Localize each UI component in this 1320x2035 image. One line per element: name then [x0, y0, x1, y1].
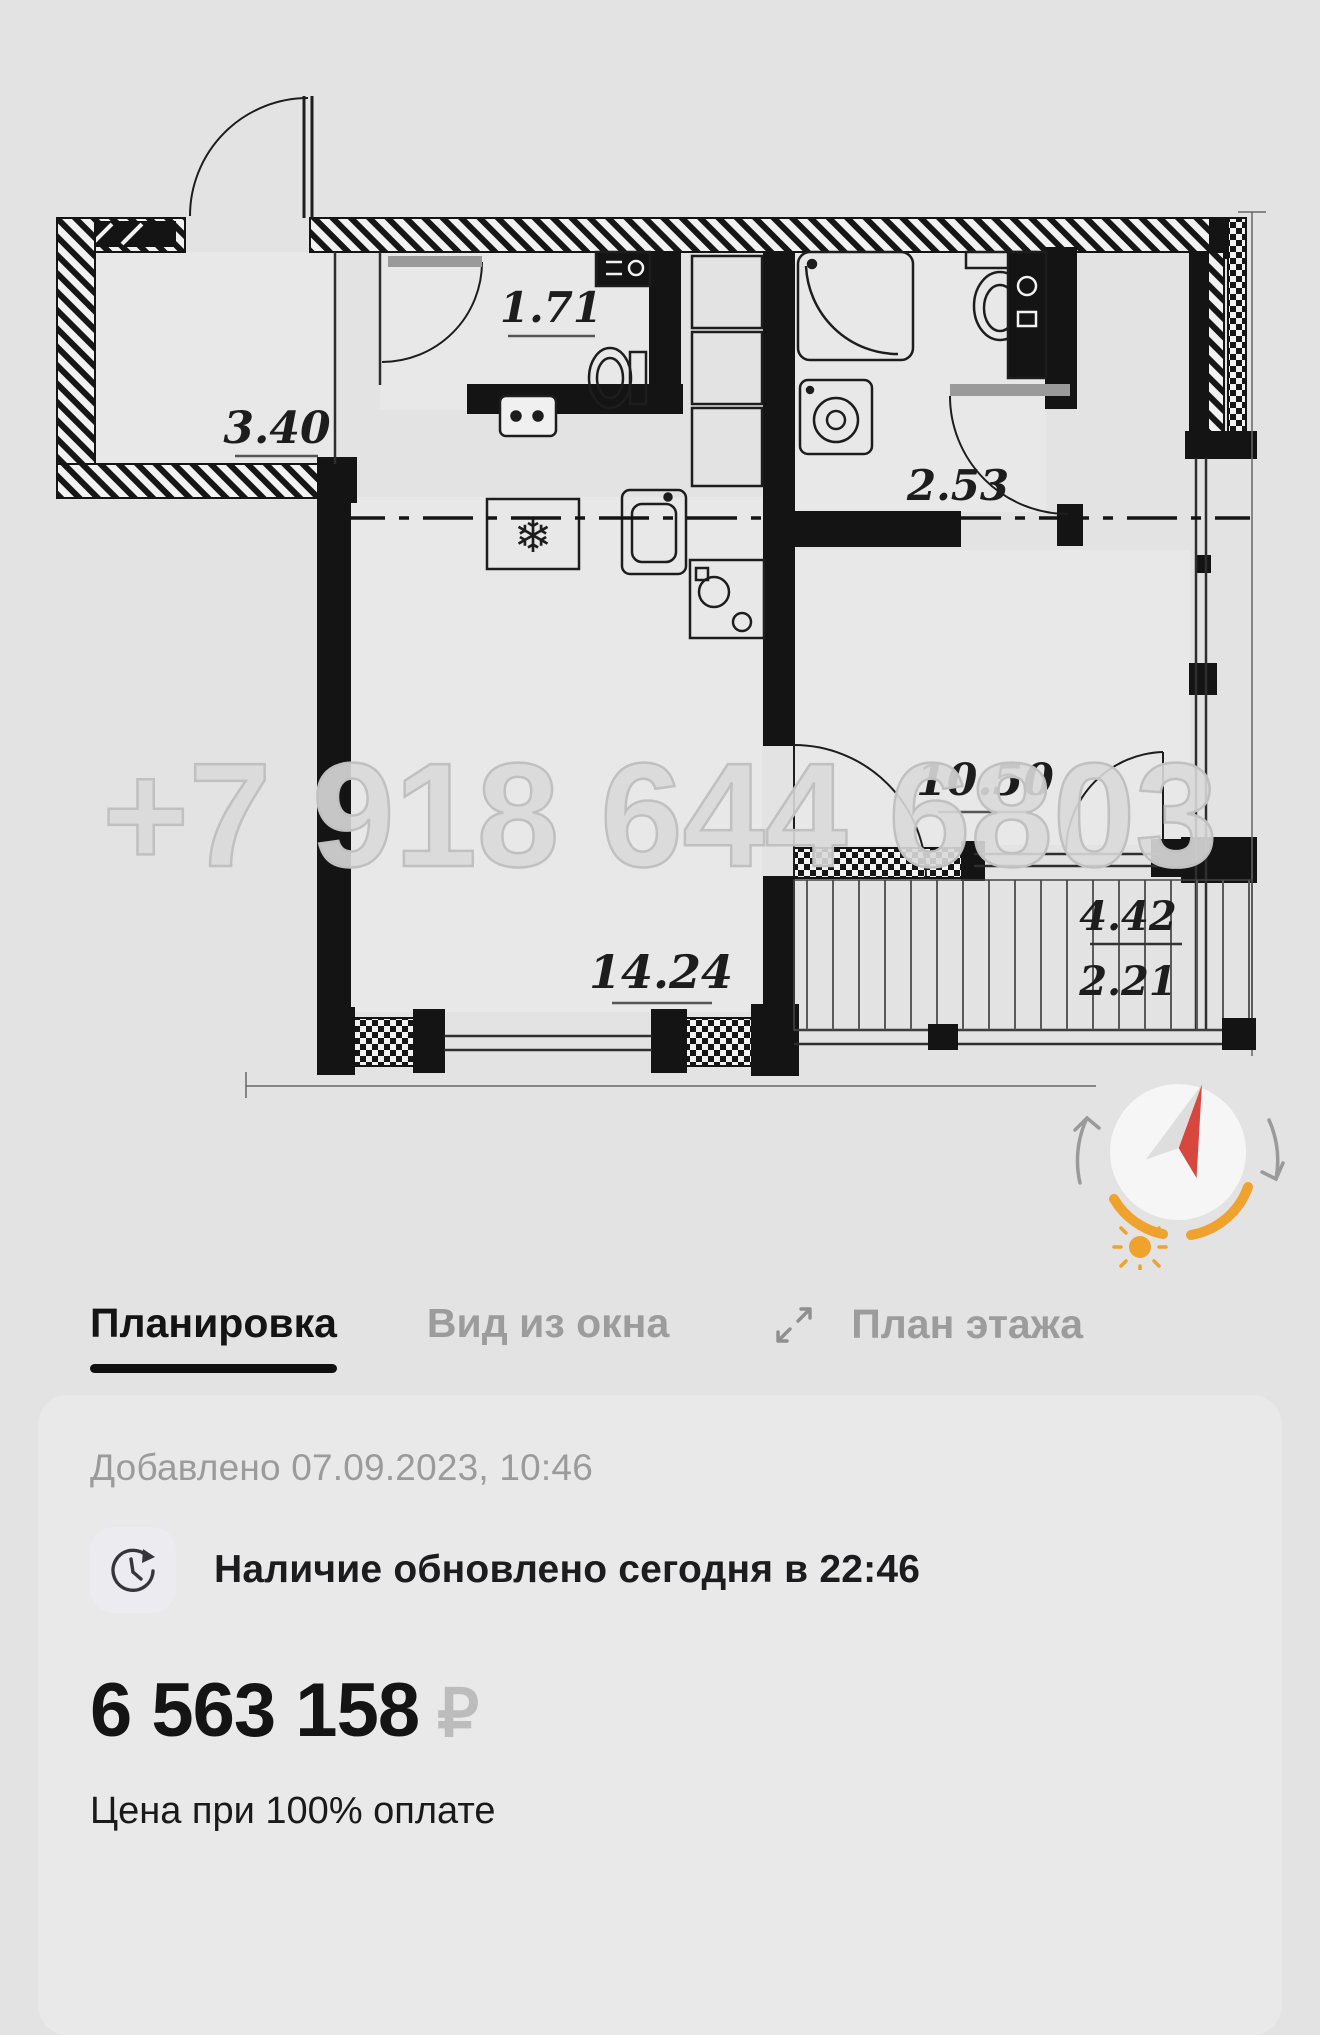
room-label-bathroom: 2.53	[906, 461, 1009, 510]
tab-floor-plan-label: План этажа	[851, 1301, 1083, 1348]
tab-layout[interactable]: Планировка	[90, 1300, 337, 1373]
balcony-decking	[794, 880, 1252, 1030]
update-clock-badge	[90, 1527, 176, 1613]
media-tabs: Планировка Вид из окна План этажа	[90, 1300, 1083, 1374]
availability-row: Наличие обновлено сегодня в 22:46	[90, 1527, 1282, 1613]
details-card: Добавлено 07.09.2023, 10:46 Наличие обно…	[38, 1395, 1282, 2035]
expand-icon	[771, 1302, 817, 1348]
active-tab-underline	[90, 1364, 337, 1373]
floor-plan-image[interactable]: ❄	[0, 0, 1320, 1270]
price: 6 563 158 ₽	[90, 1667, 1282, 1754]
tab-floor-plan[interactable]: План этажа	[771, 1300, 1083, 1374]
price-note: Цена при 100% оплате	[90, 1790, 1282, 1833]
price-currency-symbol: ₽	[437, 1675, 479, 1752]
price-amount: 6 563 158	[90, 1667, 419, 1754]
watermark-phone: +7 918 644 6803	[102, 733, 1217, 898]
availability-text: Наличие обновлено сегодня в 22:46	[214, 1548, 920, 1592]
history-clock-icon	[107, 1544, 159, 1596]
tab-window-view-label: Вид из окна	[427, 1300, 669, 1346]
room-label-wc: 1.71	[500, 283, 602, 332]
balcony-label-counted: 2.21	[1078, 958, 1176, 1005]
compass-icon	[1075, 1075, 1283, 1270]
tab-window-view[interactable]: Вид из окна	[427, 1300, 669, 1373]
room-label-hallway: 3.40	[223, 403, 331, 454]
sun-icon	[1114, 1221, 1166, 1270]
floor-plan-drawing: ❄	[0, 0, 1320, 1270]
tab-layout-label: Планировка	[90, 1300, 337, 1346]
room-label-living: 14.24	[589, 945, 733, 999]
added-date: Добавлено 07.09.2023, 10:46	[90, 1447, 1282, 1489]
bathroom-sink-counter	[1008, 252, 1046, 378]
balcony-label-total: 4.42	[1079, 893, 1176, 940]
entrance-door	[190, 96, 312, 218]
wc-sink-icon	[500, 396, 556, 436]
kitchen-counter	[692, 256, 762, 486]
